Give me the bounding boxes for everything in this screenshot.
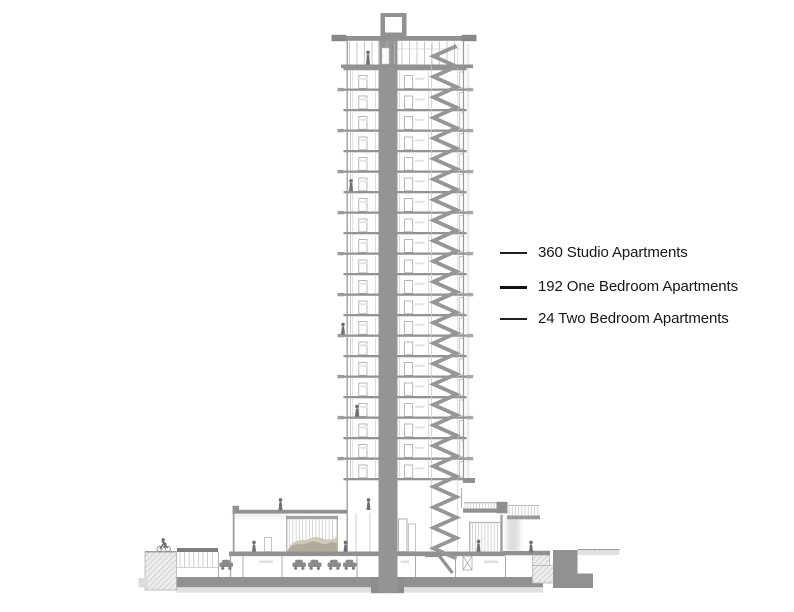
person-head (366, 51, 370, 55)
floor-label-faint (415, 447, 425, 449)
unit-door-right (405, 199, 413, 212)
floor-label-faint (360, 447, 368, 449)
floor-label-faint (415, 180, 425, 182)
floor-label-faint (360, 242, 368, 244)
balcony-tab-right (466, 211, 473, 214)
balcony-tab-left (338, 211, 344, 214)
floor-label-faint (415, 283, 425, 285)
unit-door-right (405, 178, 413, 191)
unit-door-right (405, 363, 413, 376)
floor-label-faint (415, 160, 425, 162)
overrun-window (385, 17, 402, 33)
unit-door-right (405, 342, 413, 355)
person-figure (279, 498, 283, 510)
floor-label-faint (415, 365, 425, 367)
balcony-tab-left (338, 457, 344, 460)
balcony-tab-left (338, 170, 344, 173)
core-door-top-floor (382, 48, 389, 64)
cantilever-beam (507, 516, 540, 520)
floor-label-faint (360, 406, 368, 408)
auditorium (286, 516, 338, 552)
balcony-tab-left (338, 129, 344, 132)
footing-step-left (139, 578, 148, 588)
floor-label-faint (415, 344, 425, 346)
person-head (529, 541, 533, 545)
car-wheel (310, 567, 313, 570)
balcony-tab-right (466, 252, 473, 255)
floor-label-faint (415, 119, 425, 121)
car-wheel (294, 567, 297, 570)
unit-door-left (359, 301, 367, 314)
car-wheel (317, 567, 320, 570)
podium-glazing-mullions (473, 524, 501, 552)
car-wheel (352, 567, 355, 570)
floor-label-faint (360, 221, 368, 223)
unit-door-left (359, 96, 367, 109)
auditorium-roof-slab (286, 516, 338, 519)
podium-right (463, 502, 540, 552)
car-wheel (345, 567, 348, 570)
car-cabin (346, 560, 354, 563)
floor-label-faint (415, 78, 425, 80)
trellis-canopy (177, 548, 219, 577)
person-body (367, 502, 371, 510)
unit-door-right (405, 96, 413, 109)
person-body (366, 55, 370, 65)
floor-label-faint (360, 98, 368, 100)
floor-label-faint (360, 365, 368, 367)
balcony-tab-right (466, 170, 473, 173)
unit-door-left (359, 404, 367, 417)
podium-left-door (265, 538, 272, 552)
car (343, 560, 357, 570)
cornice-slab (332, 36, 477, 41)
floor-label-faint (360, 262, 368, 264)
legend-label: 192 One Bedroom Apartments (538, 279, 738, 295)
cyclist-figure (157, 538, 171, 551)
cars (220, 560, 357, 570)
unit-door-right (405, 281, 413, 294)
building-section-canvas (0, 0, 794, 612)
car (293, 560, 307, 570)
car (328, 560, 342, 570)
balcony-tab-right (466, 334, 473, 337)
unit-door-right (405, 219, 413, 232)
road-deck-right (578, 550, 620, 556)
floor-label-faint (360, 303, 368, 305)
person-figure (529, 541, 533, 553)
balcony-tab-left (338, 252, 344, 255)
column-x-brace (463, 556, 472, 570)
floor-label-faint (360, 119, 368, 121)
room-label-2 (484, 561, 498, 564)
floor-label-faint (360, 324, 368, 326)
canopy-slab (177, 548, 218, 552)
legend-item-one-bedroom: 192 One Bedroom Apartments (500, 279, 738, 295)
person-body (529, 545, 533, 553)
foundation-right-footing (553, 574, 593, 589)
unit-door-right (405, 445, 413, 458)
unit-door-left (359, 199, 367, 212)
unit-door-right (405, 322, 413, 335)
unit-door-right (405, 383, 413, 396)
unit-door-left (359, 424, 367, 437)
unit-door-left (359, 137, 367, 150)
floor-label-faint (360, 385, 368, 387)
car-wheel (301, 567, 304, 570)
unit-door-left (359, 240, 367, 253)
floor-label-faint (415, 303, 425, 305)
roof-railing-posts (465, 503, 494, 509)
podium-left-roof-slab (233, 510, 348, 514)
cornice-cap-left (332, 35, 347, 41)
unit-door-left (359, 178, 367, 191)
room-label-1 (401, 561, 410, 564)
cornice-cap-right (462, 35, 477, 41)
floor-label-faint (360, 78, 368, 80)
legend-label: 360 Studio Apartments (538, 245, 688, 261)
legend-leader-line (500, 286, 527, 289)
car-wheel (221, 567, 224, 570)
person-figure (367, 498, 371, 510)
floor-label-faint (415, 98, 425, 100)
lobby-tall-door-1 (399, 519, 408, 552)
balcony-tab-right (466, 88, 473, 91)
floor-label-faint (415, 221, 425, 223)
legend-leader-line (500, 252, 527, 254)
floor-label-faint (360, 201, 368, 203)
floor-label-faint (360, 426, 368, 428)
car-cabin (222, 560, 230, 563)
floor-label-faint (360, 139, 368, 141)
person-figure (349, 179, 353, 191)
balcony-tab-right (466, 293, 473, 296)
unit-door-left (359, 76, 367, 89)
unit-door-left (359, 260, 367, 273)
car-wheel (336, 567, 339, 570)
legend-leader-line (500, 318, 527, 320)
floor-label-faint (415, 242, 425, 244)
unit-door-left (359, 383, 367, 396)
room-label-parking (259, 561, 273, 564)
floor-label-faint (360, 283, 368, 285)
unit-door-right (405, 240, 413, 253)
balcony-tab-right (466, 416, 473, 419)
unit-door-right (405, 76, 413, 89)
unit-door-left (359, 281, 367, 294)
balcony-tab-left (338, 375, 344, 378)
person-head (367, 498, 371, 502)
person-body (341, 327, 345, 335)
floor-label-faint (415, 406, 425, 408)
floor-label-faint (415, 262, 425, 264)
floor-label-faint (360, 344, 368, 346)
unit-door-left (359, 117, 367, 130)
person-head (341, 323, 345, 327)
unit-door-right (405, 404, 413, 417)
basement-floor-slab (172, 577, 543, 587)
lowest-slab-tab-right (463, 478, 475, 483)
car-cabin (311, 560, 319, 563)
architectural-section-drawing: 360 Studio Apartments 192 One Bedroom Ap… (0, 0, 794, 612)
car-cabin (295, 560, 303, 563)
floor-label-faint (415, 426, 425, 428)
terrace-slab-right (503, 551, 550, 555)
unit-door-right (405, 260, 413, 273)
rooftop-elevator-overrun (381, 13, 407, 40)
legend-item-studio: 360 Studio Apartments (500, 245, 688, 261)
lobby-tall-door-2 (409, 524, 416, 552)
person-figure (341, 323, 345, 335)
person-figure (366, 51, 370, 65)
foundation-right-lower (533, 566, 555, 584)
person-head (344, 541, 348, 545)
beam-railing-posts (509, 506, 538, 515)
balcony-tab-right (466, 457, 473, 460)
person-head (349, 179, 353, 183)
balcony-tab-right (466, 375, 473, 378)
car-wheel (329, 567, 332, 570)
legend-item-two-bedroom: 24 Two Bedroom Apartments (500, 311, 729, 327)
unit-door-left (359, 445, 367, 458)
floor-label-faint (360, 160, 368, 162)
podium-floor-slab (229, 552, 505, 557)
shadow-tower-right-facade (467, 44, 470, 480)
stair-zigzag (432, 44, 458, 559)
unit-door-right (405, 137, 413, 150)
person-head (355, 405, 359, 409)
floor-label-faint (360, 467, 368, 469)
unit-door-right (405, 424, 413, 437)
balcony-tab-right (466, 129, 473, 132)
floor-label-faint (415, 201, 425, 203)
balcony-tab-left (338, 293, 344, 296)
legend-label: 24 Two Bedroom Apartments (538, 311, 729, 327)
person-body (349, 183, 353, 191)
car (308, 560, 322, 570)
unit-door-right (405, 117, 413, 130)
car-cabin (330, 560, 338, 563)
floor-label-faint (415, 324, 425, 326)
floor-label-faint (415, 385, 425, 387)
unit-door-right (405, 301, 413, 314)
unit-door-left (359, 465, 367, 478)
unit-door-left (359, 219, 367, 232)
stair-flights (434, 46, 457, 559)
canopy-posts (180, 552, 212, 568)
person-figure (252, 541, 256, 552)
unit-door-left (359, 363, 367, 376)
balcony-tab-left (338, 88, 344, 91)
balcony-tab-left (338, 416, 344, 419)
person-head (252, 541, 256, 545)
person-body (252, 545, 256, 552)
floor-label-faint (360, 180, 368, 182)
floor-label-faint (415, 467, 425, 469)
person-head (477, 540, 481, 544)
shadow-washes (233, 44, 520, 552)
unit-door-left (359, 322, 367, 335)
person-body (477, 544, 481, 552)
floor-label-faint (415, 139, 425, 141)
unit-door-right (405, 465, 413, 478)
unit-door-left (359, 342, 367, 355)
basement-stair (425, 556, 453, 574)
shadow-right-of-podium (507, 517, 520, 552)
person-figure (477, 540, 481, 552)
basement (231, 556, 506, 578)
unit-door-left (359, 158, 367, 171)
car-wheel (228, 567, 231, 570)
podium-left-wall (233, 510, 235, 552)
sub-slab-strip (176, 587, 543, 592)
retaining-wall-left (145, 552, 177, 591)
person-head (279, 498, 283, 502)
basement-walls (231, 556, 506, 577)
shadow-under-podium-roof (233, 514, 287, 518)
podium-right-parapet-block (497, 502, 508, 514)
unit-door-right (405, 158, 413, 171)
person-body (279, 502, 283, 510)
